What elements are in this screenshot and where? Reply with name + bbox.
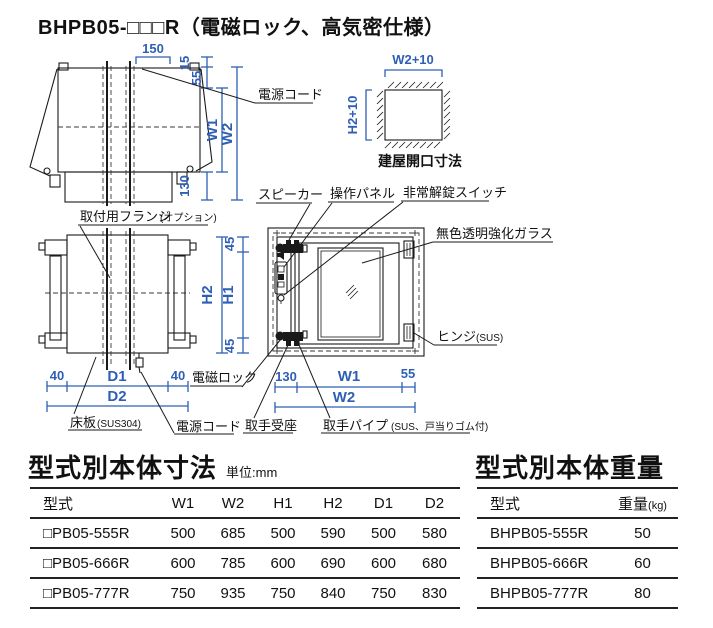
front-view-vertical-dims: 45 H2 H1 45 [199,237,249,353]
dim-w2-front: W2 [333,389,356,406]
size-table-title: 型式別本体寸法 [28,448,217,485]
value-cell: 840 [308,578,358,608]
power-cord-label: 電源コード [258,87,323,102]
dim-d2: D2 [107,388,126,405]
glass-label: 無色透明強化ガラス [436,226,553,241]
dim-55: 55 [189,71,204,85]
model-cell: BHPB05-555R [477,518,607,548]
value-cell: 750 [358,578,409,608]
value-cell: 935 [208,578,258,608]
model-cell: BHPB05-666R [477,548,607,578]
value-cell: 830 [409,578,460,608]
front-view-drawing: スピーカー 操作パネル 非常解錠スイッチ 無色透明強化ガラス ヒンジ (SUS)… [190,185,553,433]
weight-cell: 60 [607,548,678,578]
dim-40-left: 40 [50,368,64,383]
panel-label: 操作パネル [330,186,395,201]
weight-cell: 50 [607,518,678,548]
handle-pipe-note: (SUS、戸当りゴム付) [391,420,488,433]
maglock-label: 電磁ロック [192,370,257,385]
weight-table-header-row: 型式 重量(kg) [477,488,678,518]
value-cell: 500 [158,518,208,548]
mounting-flange-label: 取付用フランジ [80,209,171,224]
technical-drawing-canvas: 150 15 55 W1 W2 130 電源コード [0,0,713,446]
model-cell: □PB05-777R [30,578,158,608]
weight-header-unit: (kg) [648,500,667,512]
glass-shine-mark [346,285,358,299]
hatching [377,82,450,148]
power-cord-label-2: 電源コード [176,419,241,434]
handle-pipe-label: 取手パイプ [323,418,388,433]
model-cell: □PB05-555R [30,518,158,548]
dim-h2plus10: H2+10 [345,96,360,135]
mounting-flange-note: (オプション) [160,212,217,224]
size-table-header-row: 型式 W1 W2 H1 H2 D1 D2 [30,488,460,518]
opening-diagram: W2+10 H2+10 建屋開口寸法 [345,52,462,169]
floor-plate-label: 床板 [70,415,96,430]
floor-plate-note: (SUS304) [97,419,141,430]
weight-table-row: BHPB05-666R 60 [477,548,678,578]
weight-cell: 80 [607,578,678,608]
dim-w2: W2 [219,123,236,146]
model-cell: BHPB05-777R [477,578,607,608]
plan-view-drawing: 40 D1 40 D2 床板 (SUS304) 電源コード [39,228,241,434]
model-cell: □PB05-666R [30,548,158,578]
value-cell: 580 [409,518,460,548]
value-cell: 600 [258,548,308,578]
emergency-switch [278,295,284,301]
size-col-d1: D1 [358,488,409,518]
size-table-row: □PB05-777R 750 935 750 840 750 830 [30,578,460,608]
size-col-h2: H2 [308,488,358,518]
size-col-w1: W1 [158,488,208,518]
dim-150: 150 [142,41,164,56]
value-cell: 600 [158,548,208,578]
value-cell: 680 [409,548,460,578]
value-cell: 685 [208,518,258,548]
weight-table-row: BHPB05-777R 80 [477,578,678,608]
dim-55-front: 55 [401,366,415,381]
size-table-row: □PB05-555R 500 685 500 590 500 580 [30,518,460,548]
weight-table-row: BHPB05-555R 50 [477,518,678,548]
spec-sheet-page: BHPB05-□□□R（電磁ロック、高気密仕様） 150 [0,0,713,628]
value-cell: 500 [258,518,308,548]
value-cell: 690 [308,548,358,578]
value-cell: 750 [258,578,308,608]
value-cell: 785 [208,548,258,578]
weight-col-model: 型式 [477,488,607,518]
weight-table-title: 型式別本体重量 [475,448,664,485]
size-col-w2: W2 [208,488,258,518]
value-cell: 750 [158,578,208,608]
emergency-label: 非常解錠スイッチ [403,185,507,200]
size-table: 型式 W1 W2 H1 H2 D1 D2 □PB05-555R 500 685 … [30,487,460,609]
opening-caption: 建屋開口寸法 [378,153,462,169]
dim-45-bottom: 45 [222,339,237,353]
hinge-note: (SUS) [476,333,503,344]
dim-40-right: 40 [171,368,185,383]
size-col-d2: D2 [409,488,460,518]
value-cell: 590 [308,518,358,548]
page-title: BHPB05-□□□R（電磁ロック、高気密仕様） [38,11,444,40]
size-table-unit: 単位:mm [226,462,277,481]
dim-w1-front: W1 [338,368,361,385]
speaker-label: スピーカー [258,187,323,202]
dim-130: 130 [177,175,192,197]
weight-col-weight: 重量(kg) [607,488,678,518]
size-col-h1: H1 [258,488,308,518]
dim-h2: H2 [199,285,216,304]
size-table-row: □PB05-666R 600 785 600 690 600 680 [30,548,460,578]
dim-15: 15 [177,56,192,70]
size-col-model: 型式 [30,488,158,518]
top-view-drawing: 150 15 55 W1 W2 130 電源コード [30,41,323,278]
value-cell: 500 [358,518,409,548]
dim-d1: D1 [107,368,126,385]
dim-130-front: 130 [275,369,297,384]
dim-h1: H1 [220,285,237,304]
dim-45-top: 45 [222,237,237,251]
handle-seat-label: 取手受座 [245,418,297,433]
weight-table: 型式 重量(kg) BHPB05-555R 50 BHPB05-666R 60 … [477,487,678,609]
dim-w2plus10: W2+10 [392,52,434,67]
weight-header-text: 重量 [618,496,648,513]
value-cell: 600 [358,548,409,578]
hinge-label: ヒンジ [437,329,476,344]
